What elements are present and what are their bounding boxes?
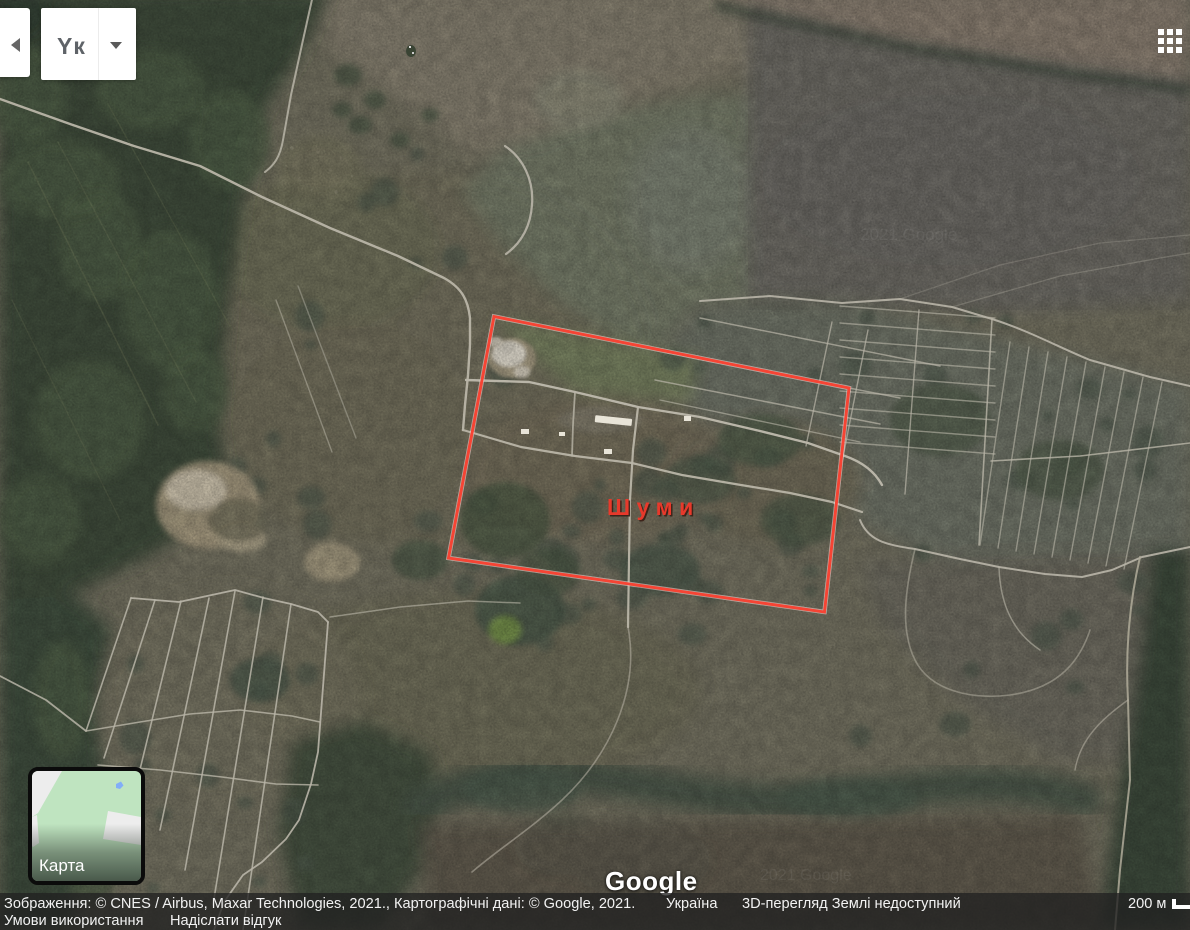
svg-text:2021 Google: 2021 Google: [860, 225, 957, 244]
svg-text:2021 Google: 2021 Google: [760, 867, 852, 884]
svg-text:Шуми: Шуми: [607, 494, 700, 520]
